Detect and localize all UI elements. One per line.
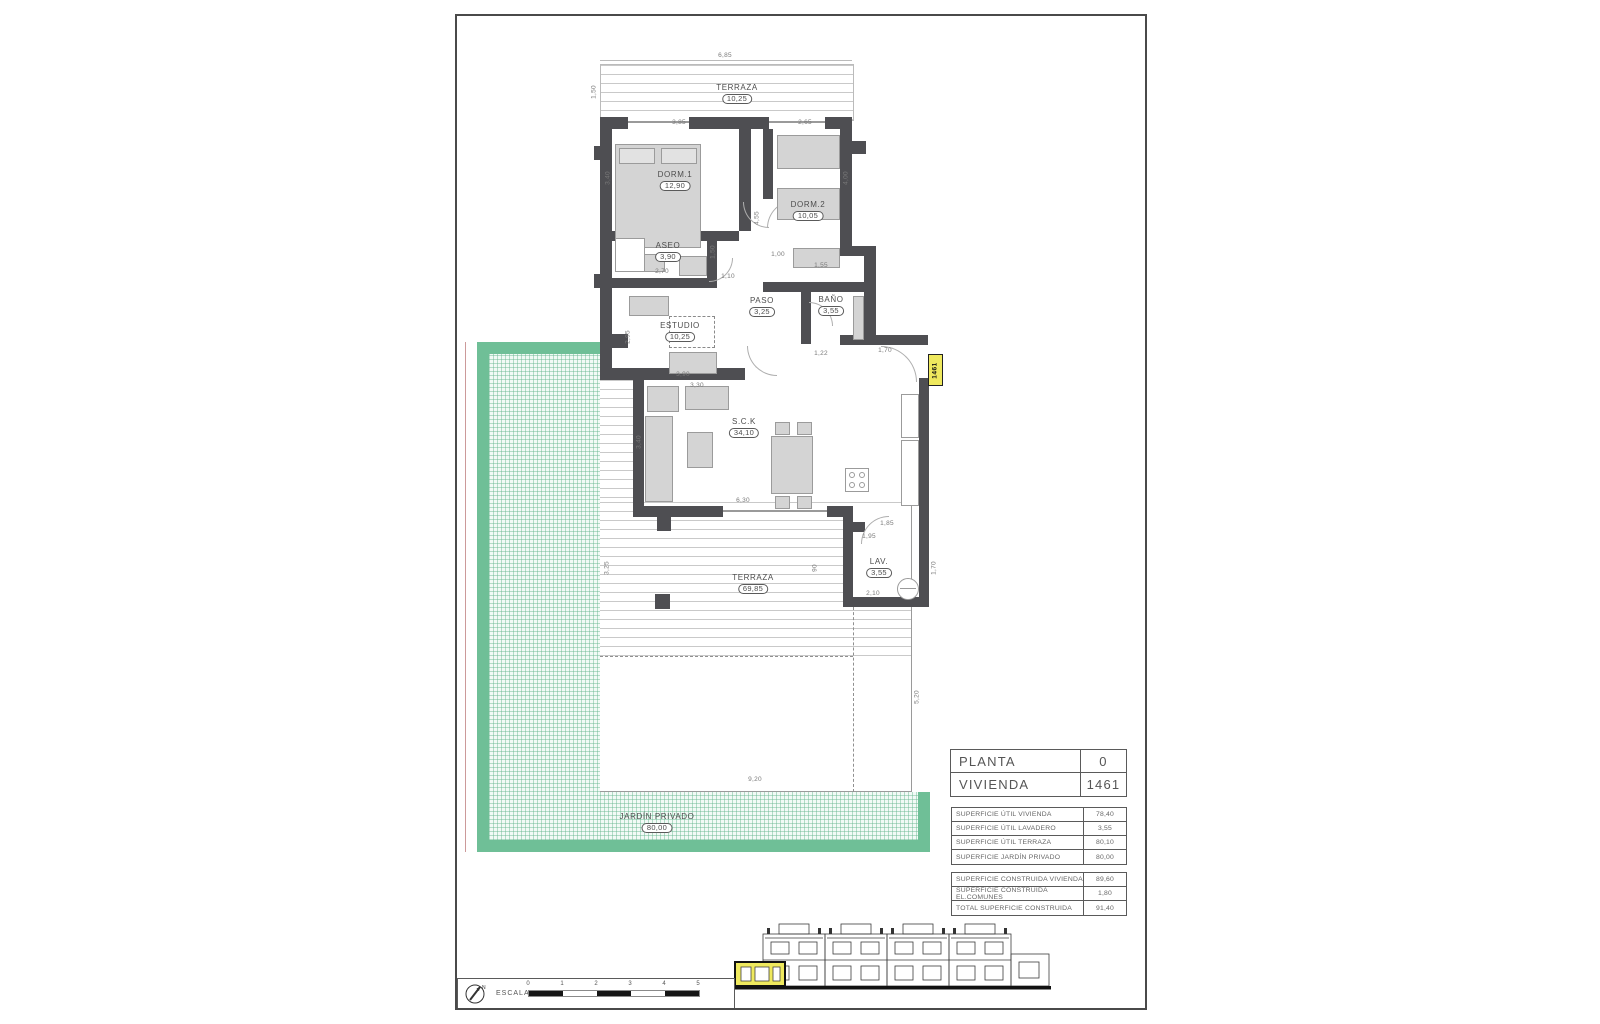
scale-tick: 1	[560, 981, 563, 987]
covered-terrace-dashed	[853, 602, 854, 792]
wall-segment	[864, 246, 876, 344]
area-label: SUPERFICIE ÚTIL VIVIENDA	[952, 811, 1083, 818]
drawing-sheet: 1461 TERRAZA10,25 DORM.112,90 DORM.210,0…	[455, 14, 1147, 1010]
dining-table	[771, 436, 813, 494]
dim-label: 5,20	[914, 690, 921, 704]
wall-segment	[840, 117, 852, 253]
area-label: SUPERFICIE CONSTRUIDA VIVIENDA	[952, 876, 1083, 883]
chair	[775, 496, 790, 509]
planta-label: PLANTA	[951, 754, 1080, 769]
terrace-edge	[600, 791, 912, 792]
dim-label: 90	[812, 564, 819, 572]
sideboard	[647, 386, 679, 412]
planta-value: 0	[1080, 750, 1126, 772]
area-value: 89,60	[1083, 873, 1126, 886]
scale-tick: 2	[594, 981, 597, 987]
hob-burner	[859, 472, 865, 478]
side-deck	[600, 380, 633, 502]
kitchen-hob	[845, 468, 869, 492]
chair	[775, 422, 790, 435]
room-label-bano: BAÑO3,55	[818, 296, 844, 316]
terrace-lower-open	[600, 657, 912, 792]
dim-label: 6,30	[736, 497, 750, 504]
dim-label: 1,00	[771, 251, 785, 258]
table-row: TOTAL SUPERFICIE CONSTRUIDA 91,40	[952, 901, 1126, 915]
sliding-door-line	[723, 510, 827, 512]
hob-burner	[849, 472, 855, 478]
planta-row: PLANTA 0	[951, 750, 1126, 773]
garden-hatch-left	[477, 342, 600, 852]
area-label: SUPERFICIE JARDÍN PRIVADO	[952, 854, 1083, 861]
hob-burner	[849, 482, 855, 488]
vivienda-row: VIVIENDA 1461	[951, 773, 1126, 796]
wall-segment	[919, 378, 929, 507]
room-label-jardin: JARDÍN PRIVADO80,00	[620, 813, 695, 833]
cabinet	[629, 296, 669, 316]
kitchen-cabinet	[901, 394, 919, 438]
shower-tray	[615, 238, 645, 272]
bath-vanity	[853, 296, 864, 340]
coffee-table	[687, 432, 713, 468]
scale-bar	[528, 990, 700, 997]
area-label: SUPERFICIE CONSTRUIDA EL.COMUNES	[952, 887, 1083, 901]
dim-label: 1,50	[710, 245, 717, 259]
dim-label: 3,25	[604, 561, 611, 575]
room-label-paso: PASO3,25	[749, 297, 775, 317]
dim-label: 1,22	[814, 350, 828, 357]
dim-label: 1,50	[591, 85, 598, 99]
dim-label: 3,40	[636, 435, 643, 449]
north-label: N	[482, 985, 486, 991]
washing-machine-icon	[900, 588, 916, 589]
table-row: SUPERFICIE JARDÍN PRIVADO 80,00	[952, 850, 1126, 864]
wall-segment	[843, 597, 929, 607]
terrace-edge	[911, 502, 912, 792]
washing-machine-icon	[897, 578, 919, 600]
dim-label: 9,20	[748, 776, 762, 783]
table-row: SUPERFICIE CONSTRUIDA EL.COMUNES 1,80	[952, 887, 1126, 901]
terrace-column	[655, 594, 670, 609]
table-row: SUPERFICIE ÚTIL TERRAZA 80,10	[952, 836, 1126, 850]
area-value: 80,10	[1083, 836, 1126, 849]
plot-boundary-line	[465, 342, 466, 852]
dim-label: 3,30	[690, 382, 704, 389]
ground-line	[733, 986, 1051, 990]
room-label-dorm2: DORM.210,05	[791, 201, 826, 221]
dim-label: 3,90	[676, 371, 690, 378]
dim-label: 1,10	[721, 273, 735, 280]
dim-label: 1,70	[878, 347, 892, 354]
area-label: SUPERFICIE ÚTIL TERRAZA	[952, 839, 1083, 846]
scale-tick: 4	[662, 981, 665, 987]
wall-pillar	[657, 517, 671, 531]
bathroom-sink	[679, 256, 707, 276]
wall-segment	[643, 506, 723, 517]
area-value: 3,55	[1083, 822, 1126, 835]
dim-label: 1,70	[931, 561, 938, 575]
dim-label: 3,40	[605, 171, 612, 185]
dim-label: 3,85	[672, 119, 686, 126]
dim-label: 4,00	[843, 171, 850, 185]
unit-number-tag: 1461	[928, 354, 943, 386]
dim-label: 1,85	[880, 520, 894, 527]
covered-terrace-dashed	[600, 656, 853, 657]
dim-label: 2,65	[798, 119, 812, 126]
building-elevation	[733, 914, 1063, 996]
area-value: 78,40	[1083, 808, 1126, 821]
chair	[797, 496, 812, 509]
table-row: SUPERFICIE ÚTIL VIVIENDA 78,40	[952, 808, 1126, 822]
area-label: TOTAL SUPERFICIE CONSTRUIDA	[952, 905, 1083, 912]
area-value: 80,00	[1083, 850, 1126, 864]
room-label-aseo: ASEO3,90	[655, 242, 681, 262]
pillow	[661, 148, 697, 164]
room-label-terraza-inf: TERRAZA69,85	[732, 574, 774, 594]
wall-segment	[763, 129, 773, 199]
room-label-lav: LAV.3,55	[866, 558, 892, 578]
wall-pillar	[852, 141, 866, 154]
scale-tick: 5	[696, 981, 699, 987]
wall-segment	[843, 507, 853, 607]
areas-util-table: SUPERFICIE ÚTIL VIVIENDA 78,40 SUPERFICI…	[951, 807, 1127, 865]
wall-segment	[763, 282, 864, 292]
room-label-estudio: ESTUDIO10,25	[660, 322, 700, 342]
armchair	[685, 386, 729, 410]
window-line	[769, 121, 825, 123]
scale-tick: 3	[628, 981, 631, 987]
vivienda-label: VIVIENDA	[951, 777, 1080, 792]
dim-label: 4,55	[754, 211, 761, 225]
wall-pillar	[594, 146, 602, 160]
wall-segment	[689, 117, 769, 129]
scale-tick: 0	[526, 981, 529, 987]
title-block: PLANTA 0 VIVIENDA 1461	[950, 749, 1127, 797]
areas-construida-table: SUPERFICIE CONSTRUIDA VIVIENDA 89,60 SUP…	[951, 872, 1127, 916]
pillow	[619, 148, 655, 164]
room-label-dorm1: DORM.112,90	[658, 171, 693, 191]
chair	[797, 422, 812, 435]
room-label-terraza-sup: TERRAZA10,25	[716, 84, 758, 104]
kitchen-counter	[901, 440, 919, 506]
dim-label: 2,70	[655, 268, 669, 275]
table-row: SUPERFICIE ÚTIL LAVADERO 3,55	[952, 822, 1126, 836]
bed-single	[777, 135, 840, 169]
room-label-sck: S.C.K34,10	[729, 418, 759, 438]
area-value: 1,80	[1083, 887, 1126, 900]
north-compass-icon: N	[464, 982, 488, 1006]
vivienda-value: 1461	[1080, 773, 1126, 796]
dim-line	[600, 60, 852, 61]
dim-label: 2,10	[866, 590, 880, 597]
dim-label: 1,95	[862, 533, 876, 540]
sofa	[645, 416, 673, 502]
dim-label: 2,95	[625, 330, 632, 344]
dim-label: 6,85	[718, 52, 732, 59]
dim-label: 1,55	[814, 262, 828, 269]
scale-box: N ESCALA : 0 1 2 3 4 5	[457, 978, 735, 1009]
area-value: 91,40	[1083, 901, 1126, 915]
wall-segment	[919, 507, 929, 607]
wall-segment	[600, 278, 717, 288]
hob-burner	[859, 482, 865, 488]
area-label: SUPERFICIE ÚTIL LAVADERO	[952, 825, 1083, 832]
table-row: SUPERFICIE CONSTRUIDA VIVIENDA 89,60	[952, 873, 1126, 887]
